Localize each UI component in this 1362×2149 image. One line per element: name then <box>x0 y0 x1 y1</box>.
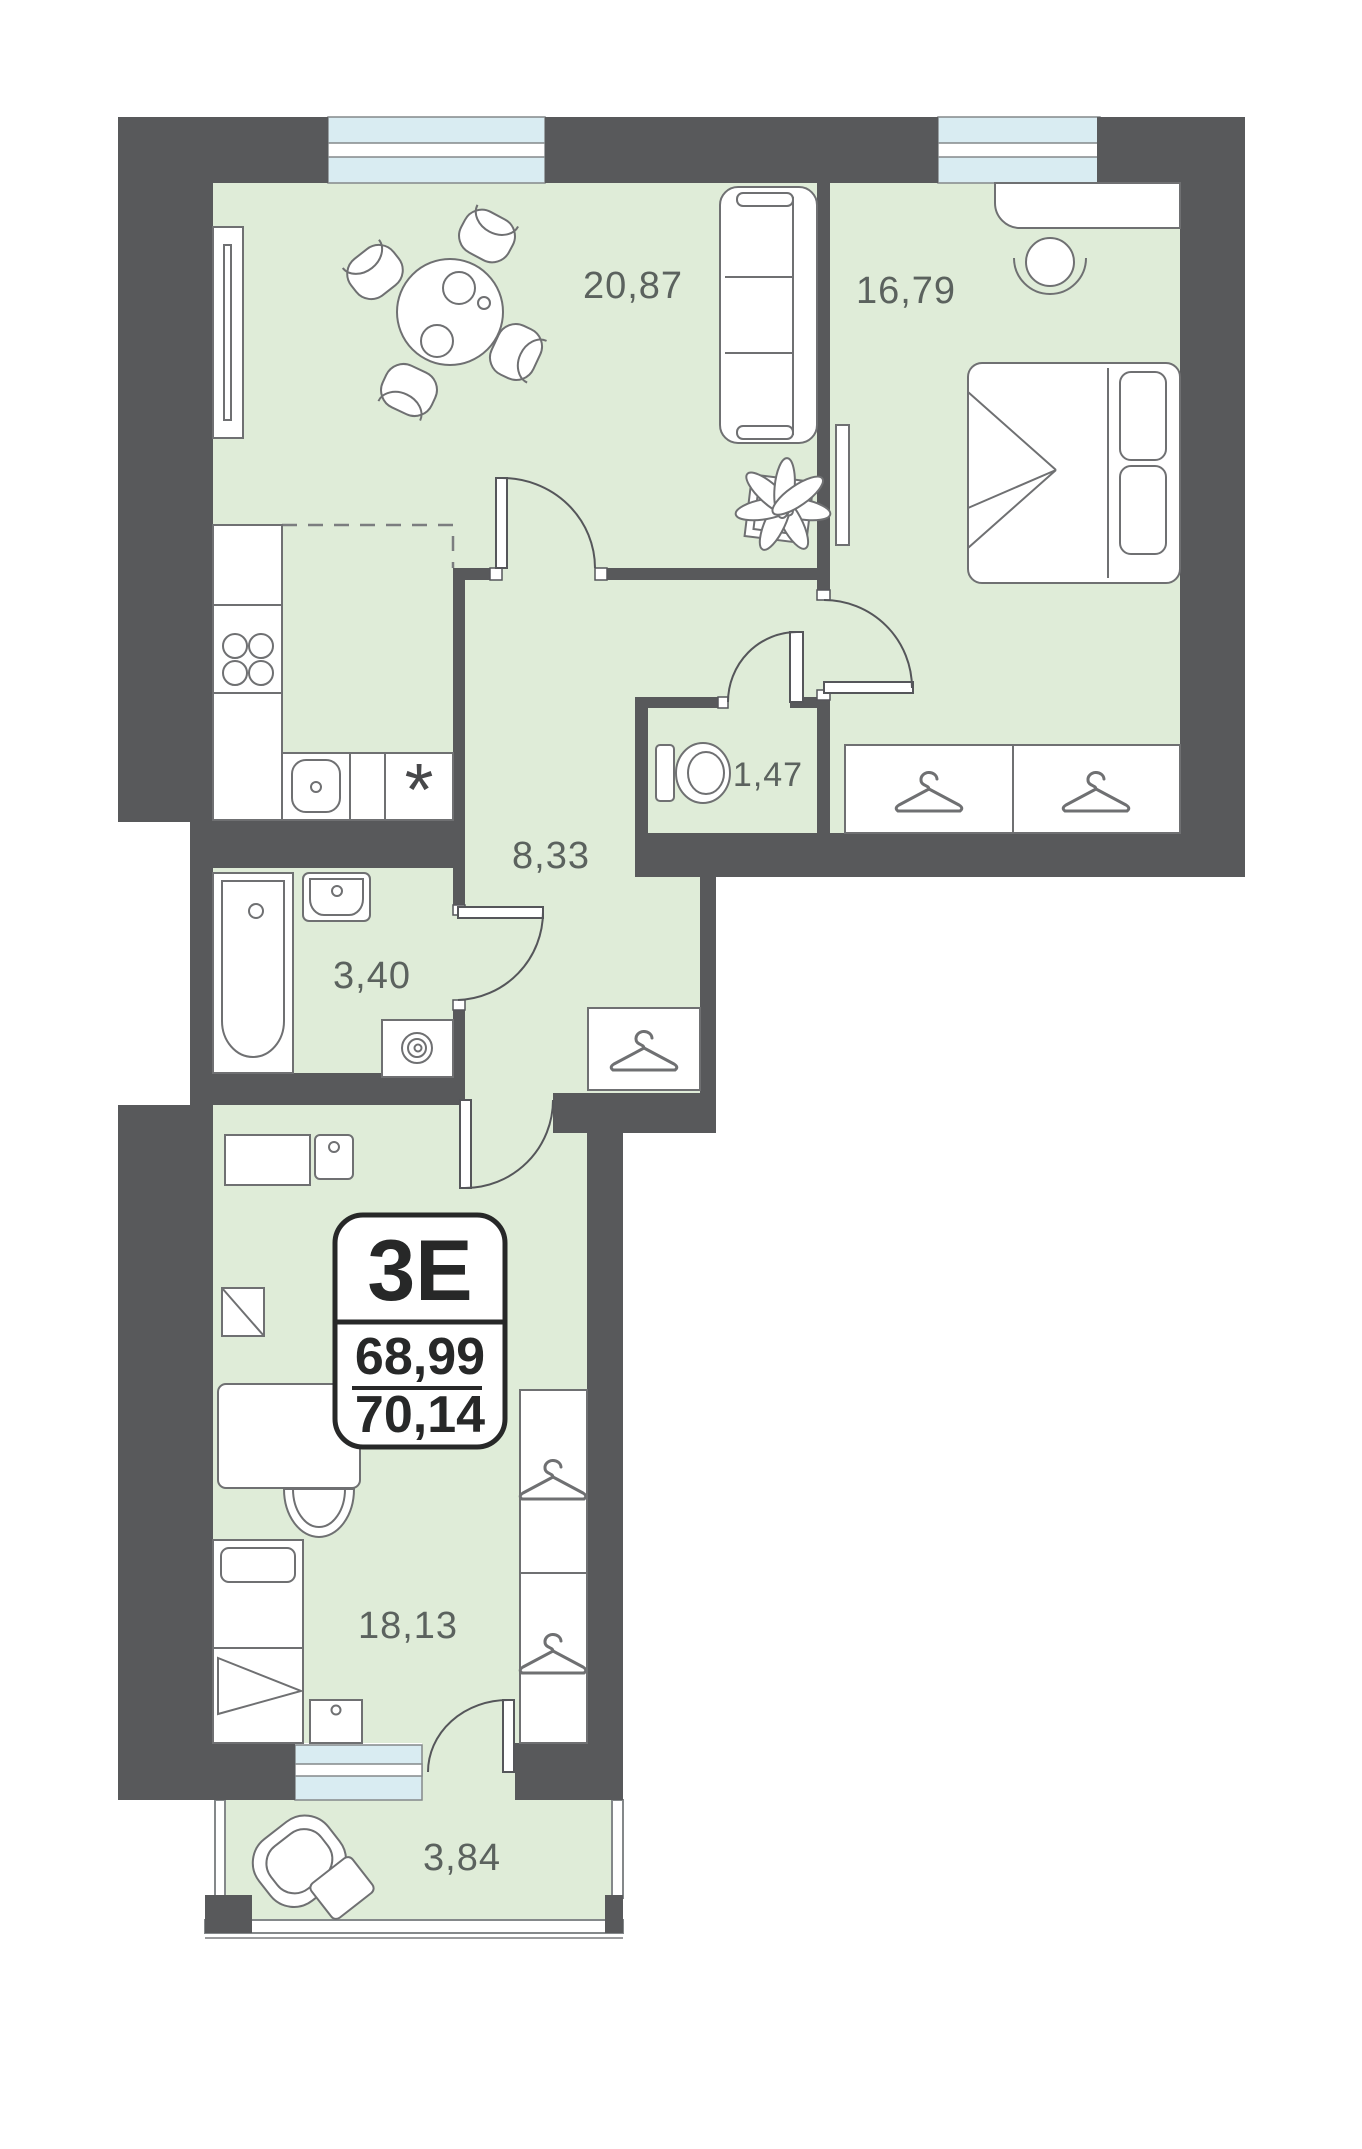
balcony-pier-left <box>205 1895 252 1933</box>
window-living <box>328 117 545 183</box>
floor-plan-page: * <box>0 0 1362 2149</box>
single-bed <box>213 1540 303 1743</box>
room-label-bedroom2: 18,13 <box>358 1605 458 1647</box>
bedroom-wardrobe <box>845 745 1180 833</box>
sofa <box>720 187 817 443</box>
wc-toilet <box>656 743 730 803</box>
tv-panel <box>836 425 849 545</box>
kitchen-sink <box>292 760 340 812</box>
room-label-hallway: 8,33 <box>512 835 590 877</box>
double-bed <box>968 363 1180 583</box>
window-balcony <box>295 1745 422 1800</box>
washbasin <box>303 873 370 921</box>
unit-badge: 3E 68,99 70,14 <box>335 1215 505 1447</box>
nightstand <box>310 1700 362 1743</box>
balcony-pier-right <box>605 1895 623 1933</box>
bathtub <box>213 873 293 1073</box>
floor-plan-canvas: * <box>0 0 1362 2149</box>
wall-shelf <box>222 1288 264 1336</box>
hall-wardrobe <box>588 1008 700 1090</box>
desk-chair <box>1026 238 1074 286</box>
room-label-bathroom: 3,40 <box>333 955 411 997</box>
room-label-balcony: 3,84 <box>423 1837 501 1879</box>
closet-top <box>225 1135 353 1185</box>
room-label-bedroom: 16,79 <box>856 270 956 312</box>
room-label-living: 20,87 <box>583 265 683 307</box>
radiator-panel <box>213 227 243 438</box>
window-bedroom <box>938 117 1100 183</box>
kitchen-asterisk: * <box>405 748 434 831</box>
unit-area-upper: 68,99 <box>355 1328 485 1386</box>
washing-machine <box>382 1020 453 1077</box>
dining-table <box>397 259 503 365</box>
room-label-wc: 1,47 <box>733 756 803 794</box>
unit-type: 3E <box>367 1223 472 1319</box>
bedroom2-wardrobe <box>520 1390 587 1743</box>
unit-area-lower: 70,14 <box>355 1386 485 1444</box>
